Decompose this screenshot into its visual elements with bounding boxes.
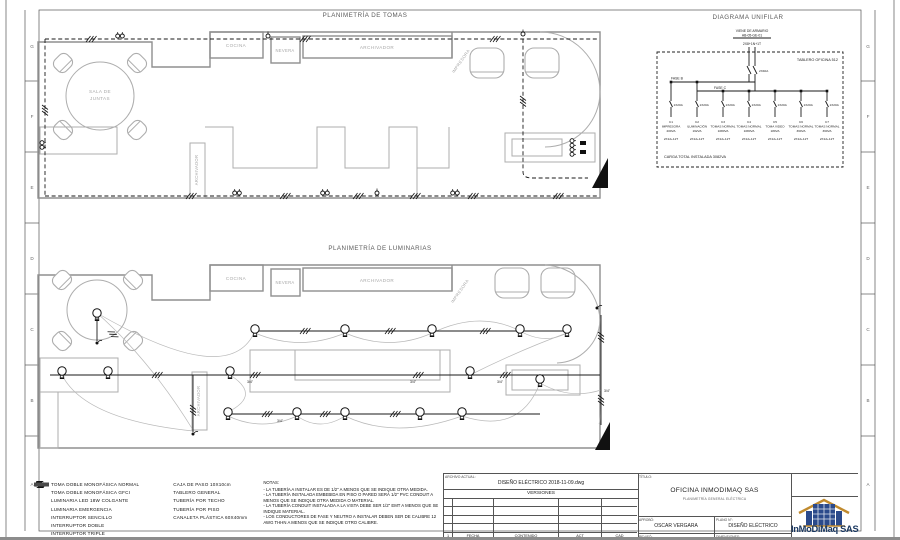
title-planimetria-luminarias: PLANIMETRÍA DE LUMINARIAS: [328, 245, 431, 252]
svg-text:3/4": 3/4": [604, 389, 611, 393]
svg-text:2X12+12T: 2X12+12T: [768, 137, 782, 141]
legend: TOMA DOBLE MONOFÁSICA NORMAL TOMA DOBLE …: [33, 480, 441, 538]
svg-text:C: C: [866, 327, 870, 332]
svg-text:162VA: 162VA: [692, 129, 702, 133]
svg-text:3/4": 3/4": [410, 380, 417, 384]
svg-text:B: B: [30, 398, 33, 403]
svg-text:F: F: [867, 114, 870, 119]
title-fields: TÍTULO: OFICINA INMODIMAQ SAS PLANIMETRÍ…: [638, 474, 792, 540]
svg-text:TOMA VIDEO: TOMA VIDEO: [765, 125, 785, 129]
svg-text:C4: C4: [747, 120, 751, 124]
svg-text:ILUMINACIÓN: ILUMINACIÓN: [687, 124, 707, 129]
sheet-linework: G F E D C B A G F E D C B A PLANIMETRÍA …: [0, 0, 900, 540]
svg-text:D: D: [30, 256, 34, 261]
circuit-5: 1X20A C5 TOMA VIDEO 180VA 2X12+12T: [765, 90, 787, 141]
main-breaker: 2X40A: [759, 69, 769, 73]
svg-text:C7: C7: [825, 120, 829, 124]
svg-text:3/4": 3/4": [497, 380, 504, 384]
notes-title: NOTAS:: [263, 480, 441, 486]
svg-text:IMPRESORA: IMPRESORA: [662, 125, 682, 129]
svg-text:1X20A: 1X20A: [700, 103, 710, 107]
svg-text:2X12+12T: 2X12+12T: [664, 137, 678, 141]
svg-text:C: C: [30, 327, 34, 332]
row-letters-right: G F E D C B A: [866, 44, 870, 487]
svg-text:2X12+12T: 2X12+12T: [716, 137, 730, 141]
company-logo: InMoDiMaq SAS: [791, 474, 858, 540]
svg-text:TOMAS NORMAL: TOMAS NORMAL: [710, 125, 735, 129]
label-impresora-2: IMPRESORA: [450, 278, 470, 304]
svg-text:G: G: [866, 44, 870, 49]
row-letters-left: G F E D C B A: [30, 44, 34, 487]
label-nevera-2: NEVERA: [275, 280, 294, 285]
logo-name: InMoDiMaq SAS: [791, 524, 858, 534]
svg-text:2X12+12T: 2X12+12T: [690, 137, 704, 141]
aprobo-value: OSCAR VERGARA: [638, 523, 714, 529]
receptacle-duplex: [321, 189, 330, 195]
circuit-1: 1X20A C1 IMPRESORA 200VA 2X12+12T: [662, 81, 684, 141]
svg-text:1X20A: 1X20A: [804, 103, 814, 107]
svg-text:C6: C6: [799, 120, 803, 124]
svg-text:2X12+12T: 2X12+12T: [794, 137, 808, 141]
panel-name: TABLERO OFICINA 512: [797, 58, 838, 62]
svg-text:180VA: 180VA: [770, 129, 780, 133]
svg-text:G: G: [30, 44, 34, 49]
receptacle-duplex: [451, 189, 460, 195]
svg-text:TOMAS NORMAL: TOMAS NORMAL: [788, 125, 813, 129]
label-impresora-1: IMPRESORA: [451, 48, 471, 74]
feeder-cable: 2X8+1N+1T: [743, 42, 761, 46]
svg-text:3/4": 3/4": [277, 419, 284, 423]
svg-text:C3: C3: [721, 120, 725, 124]
circuit-6: 1X20A C6 TOMAS NORMAL 360VA 2X12+12T: [788, 90, 813, 141]
archivo-label: ARCHIVO ACTUAL:: [445, 475, 476, 479]
label-archivador-2: ARCHIVADOR: [360, 278, 395, 283]
svg-text:E: E: [30, 185, 33, 190]
notes: NOTAS: - LA TUBERÍA A INSTALAR ES DE 1/2…: [263, 480, 441, 538]
versions-table: ARCHIVO ACTUAL: DISEÑO ELÉCTRICO 2018-11…: [444, 474, 639, 540]
svg-text:2X12+12T: 2X12+12T: [742, 137, 756, 141]
fase-b: FASE B: [671, 77, 684, 81]
svg-text:F: F: [31, 114, 34, 119]
conduit-size-labels: 3/4" 3/4" 3/4" 3/4" 3/4": [247, 380, 611, 423]
note-line: - LA TUBERÍA INSTALADA EMBEBIDA EN PISO …: [263, 492, 441, 503]
circuit-7: 1X20A C7 TOMAS NORMAL 360VA 2X12+12T: [814, 90, 839, 141]
project-subtitle: PLANIMETRÍA GENERAL ELÉCTRICA: [638, 497, 791, 501]
fase-c: FASE C: [714, 86, 727, 90]
tablero-general-symbol-2: [595, 422, 610, 450]
titulo-label: TÍTULO:: [639, 475, 652, 479]
note-line: - LOS CONDUCTORES DE FASE Y NEUTRO A INS…: [263, 514, 441, 525]
receptacle-single: [375, 189, 379, 196]
svg-text:A: A: [866, 482, 870, 487]
svg-text:C1: C1: [669, 120, 673, 124]
archivo-filename: DISEÑO ELÉCTRICO 2018-11-09.dwg: [444, 480, 638, 486]
label-archivador-1: ARCHIVADOR: [360, 45, 395, 50]
svg-text:1X20A: 1X20A: [830, 103, 840, 107]
svg-text:1080VA: 1080VA: [718, 129, 730, 133]
luminaires: [58, 309, 571, 420]
label-archivador-vertical-1: ARCHIVADOR: [194, 155, 199, 186]
svg-text:TOMAS NORMAL: TOMAS NORMAL: [736, 125, 761, 129]
label-archivador-vertical-2: ARCHIVADOR: [196, 386, 201, 417]
svg-text:D: D: [866, 256, 870, 261]
label-sala-de-juntas: SALA DE: [89, 89, 111, 94]
plan-luminarias: COCINA NEVERA ARCHIVADOR ARCHIVADOR IMPR…: [38, 265, 611, 450]
feeder-source: VIENE DE ARMARIO: [736, 29, 769, 33]
canaleta-icon: [155, 513, 173, 522]
label-cocina-1: COCINA: [226, 43, 247, 48]
title-diagrama-unifilar: DIAGRAMA UNIFILAR: [712, 14, 783, 21]
svg-text:JUNTAS: JUNTAS: [90, 96, 110, 101]
label-cocina-2: COCINA: [226, 276, 247, 281]
legend-item: CANALETA PLÁSTICA 60X40mm: [155, 513, 247, 521]
plano-label: PLANO N°:: [716, 518, 733, 522]
circuit-4: 1X20A C4 TOMAS NORMAL 1080VA 2X12+12T: [736, 90, 761, 141]
svg-text:TOMAS NORMAL: TOMAS NORMAL: [814, 125, 839, 129]
svg-text:C2: C2: [695, 120, 699, 124]
svg-text:AB-05-GE-01: AB-05-GE-01: [742, 34, 762, 38]
receptacle-duplex: [116, 32, 125, 38]
receptacle-duplex: [233, 189, 242, 195]
svg-text:360VA: 360VA: [796, 129, 806, 133]
sheet-border: G F E D C B A G F E D C B A: [6, 0, 894, 540]
circuit-2: 1X20A C2 ILUMINACIÓN 162VA 2X12+12T: [687, 81, 710, 141]
svg-text:C5: C5: [773, 120, 777, 124]
receptacle-single: [521, 30, 525, 37]
svg-text:1X20A: 1X20A: [726, 103, 736, 107]
title-planimetria-tomas: PLANIMETRÍA DE TOMAS: [323, 12, 408, 19]
switch-symbol: [192, 431, 199, 435]
legend-symbols-col2: CAJA DE PASO 10X10cm TABLERO GENERAL TUB…: [155, 480, 247, 538]
plano-value: DISEÑO ELÉCTRICO: [715, 523, 791, 529]
switch-symbol: [96, 340, 103, 344]
aprobo-label: APROBÓ:: [639, 518, 654, 522]
svg-text:1X20A: 1X20A: [674, 103, 684, 107]
svg-text:3/4": 3/4": [247, 380, 254, 384]
label-nevera-1: NEVERA: [275, 48, 294, 53]
svg-text:B: B: [866, 398, 869, 403]
svg-text:1080VA: 1080VA: [744, 129, 756, 133]
svg-text:2X12+12T: 2X12+12T: [820, 137, 834, 141]
svg-text:200VA: 200VA: [666, 129, 676, 133]
svg-text:1X20A: 1X20A: [752, 103, 762, 107]
svg-text:E: E: [866, 185, 869, 190]
total-load: CARGA TOTAL INSTALADA 3082VA: [664, 155, 726, 159]
svg-text:360VA: 360VA: [822, 129, 832, 133]
plan-tomas: SALA DE JUNTAS COCINA NEVERA ARCHIVADOR …: [38, 30, 608, 200]
version-cell: [444, 499, 453, 507]
unifilar-diagram: VIENE DE ARMARIO AB-05-GE-01 2X8+1N+1T T…: [657, 29, 843, 167]
versiones-header: VERSIONES: [444, 490, 638, 499]
circuit-3: 1X20A C3 TOMAS NORMAL 1080VA 2X12+12T: [710, 90, 735, 141]
note-line: - LA TUBERÍA CONDUIT INSTALADA A LA VIST…: [263, 503, 441, 514]
title-block: ARCHIVO ACTUAL: DISEÑO ELÉCTRICO 2018-11…: [443, 473, 858, 540]
svg-text:1X20A: 1X20A: [778, 103, 788, 107]
project-title: OFICINA INMODIMAQ SAS: [638, 487, 791, 494]
drawing-sheet: G F E D C B A G F E D C B A PLANIMETRÍA …: [0, 0, 900, 540]
